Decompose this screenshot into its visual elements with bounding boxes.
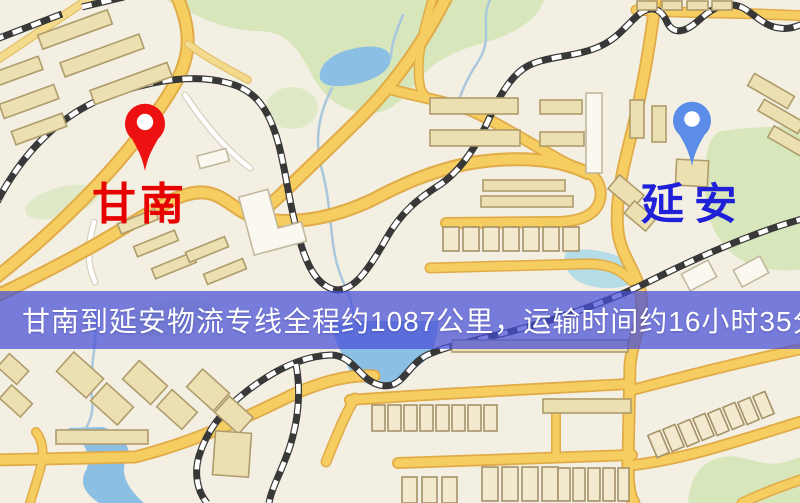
map-canvas: 甘南 延安 <box>0 0 800 503</box>
route-info-banner: 甘南到延安物流专线全程约1087公里，运输时间约16小时35分钟. <box>0 291 800 349</box>
route-info-text: 甘南到延安物流专线全程约1087公里，运输时间约16小时35分钟. <box>0 300 800 340</box>
logistics-route-map: 甘南 延安 甘南到延安物流专线全程约1087公里，运输时间约16小时35分钟. <box>0 0 800 503</box>
destination-label: 延安 <box>641 181 747 229</box>
origin-label: 甘南 <box>92 180 188 229</box>
